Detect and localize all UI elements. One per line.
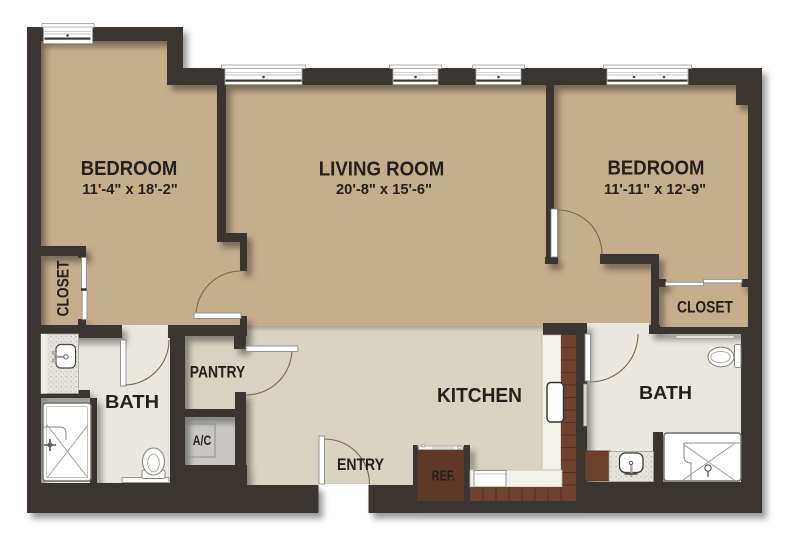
svg-text:ENTRY: ENTRY xyxy=(337,455,384,474)
svg-text:20'-8" x 15'-6": 20'-8" x 15'-6" xyxy=(336,181,432,198)
svg-text:BEDROOM: BEDROOM xyxy=(81,157,178,180)
svg-text:REF.: REF. xyxy=(432,468,456,484)
svg-text:KITCHEN: KITCHEN xyxy=(437,385,522,407)
svg-text:CLOSET: CLOSET xyxy=(677,299,733,317)
svg-text:BATH: BATH xyxy=(105,391,159,412)
svg-text:11'-4" x 18'-2": 11'-4" x 18'-2" xyxy=(82,181,178,198)
svg-text:LIVING ROOM: LIVING ROOM xyxy=(319,158,445,180)
svg-text:PANTRY: PANTRY xyxy=(190,364,246,382)
svg-text:BATH: BATH xyxy=(639,382,692,403)
svg-text:BEDROOM: BEDROOM xyxy=(608,157,705,180)
svg-text:11'-11" x 12'-9": 11'-11" x 12'-9" xyxy=(604,181,706,198)
svg-text:A/C: A/C xyxy=(193,432,212,448)
svg-text:CLOSET: CLOSET xyxy=(55,260,73,316)
